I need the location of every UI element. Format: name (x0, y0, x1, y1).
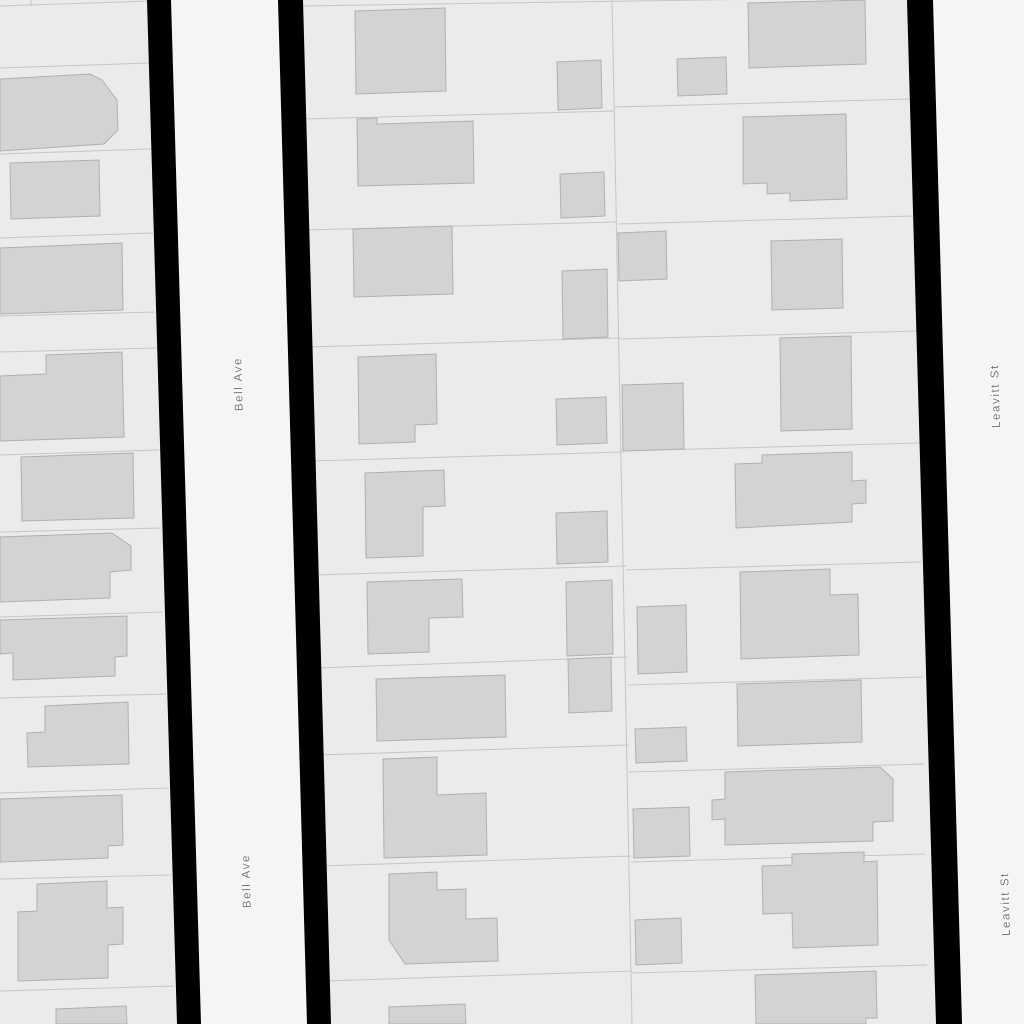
map-vector-layers (0, 0, 1024, 1024)
map-canvas[interactable]: Bell Ave Bell Ave Leavitt St Leavitt St (0, 0, 1024, 1024)
